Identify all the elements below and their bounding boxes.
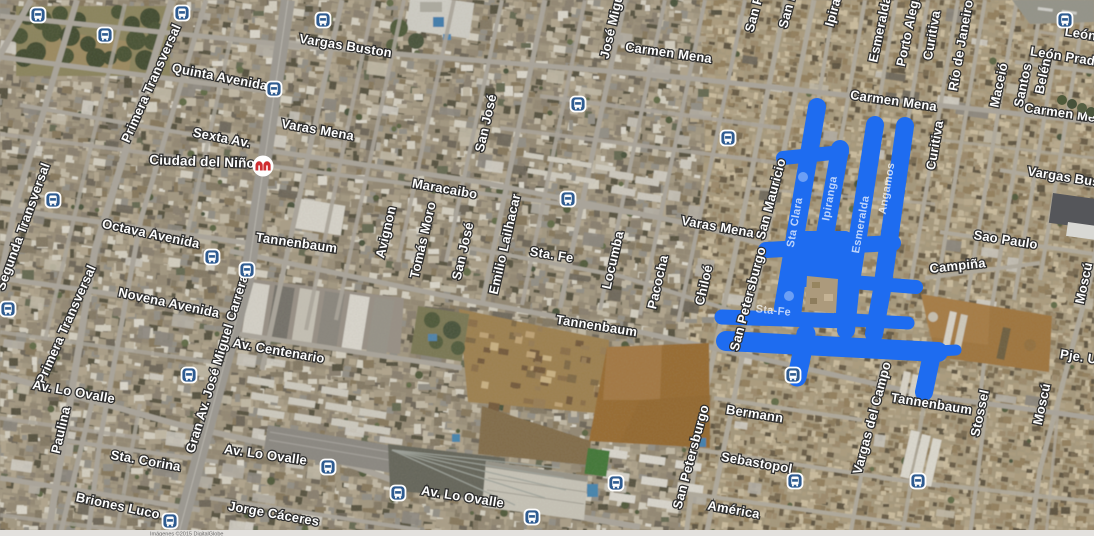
svg-text:Imágenes ©2015 DigitalGlobe: Imágenes ©2015 DigitalGlobe: [150, 531, 223, 536]
